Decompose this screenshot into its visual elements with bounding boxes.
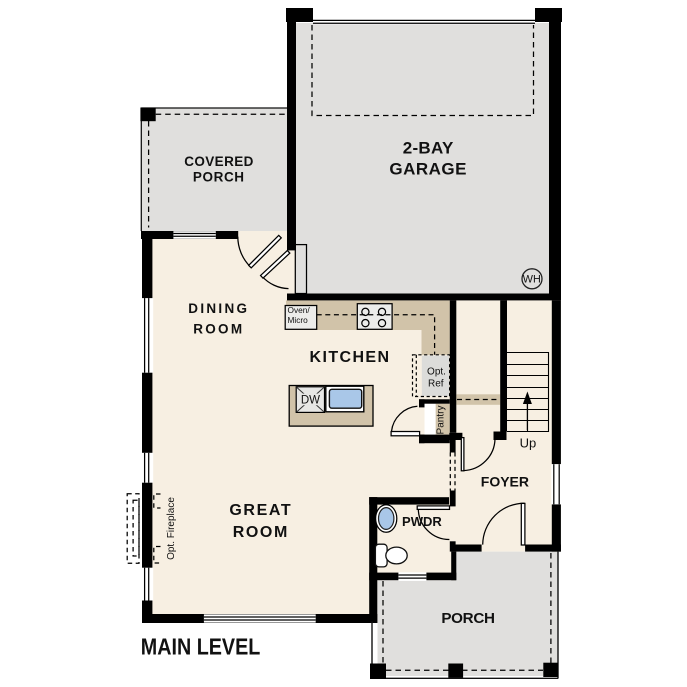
svg-text:WH: WH [523,274,541,286]
svg-text:Oven/: Oven/ [288,305,311,315]
svg-text:Opt.: Opt. [427,367,446,378]
svg-text:FOYER: FOYER [481,473,529,489]
svg-text:Ref: Ref [428,379,444,390]
svg-text:KITCHEN: KITCHEN [310,349,391,366]
svg-text:Pantry: Pantry [436,406,447,435]
svg-text:DW: DW [301,395,320,407]
svg-text:Micro: Micro [288,315,309,325]
svg-text:2-BAY: 2-BAY [403,139,454,158]
svg-text:ROOM: ROOM [233,524,289,541]
svg-text:GREAT: GREAT [229,502,292,519]
svg-text:Up: Up [520,435,537,450]
svg-text:MAIN LEVEL: MAIN LEVEL [141,634,260,660]
svg-text:DINING: DINING [188,301,249,316]
svg-text:Opt. Fireplace: Opt. Fireplace [166,497,177,560]
svg-text:GARAGE: GARAGE [389,160,467,179]
svg-text:ROOM: ROOM [193,322,244,337]
svg-text:PORCH: PORCH [441,610,494,627]
svg-text:COVERED: COVERED [184,154,254,169]
svg-text:PWDR: PWDR [402,514,442,529]
svg-text:PORCH: PORCH [193,170,245,185]
